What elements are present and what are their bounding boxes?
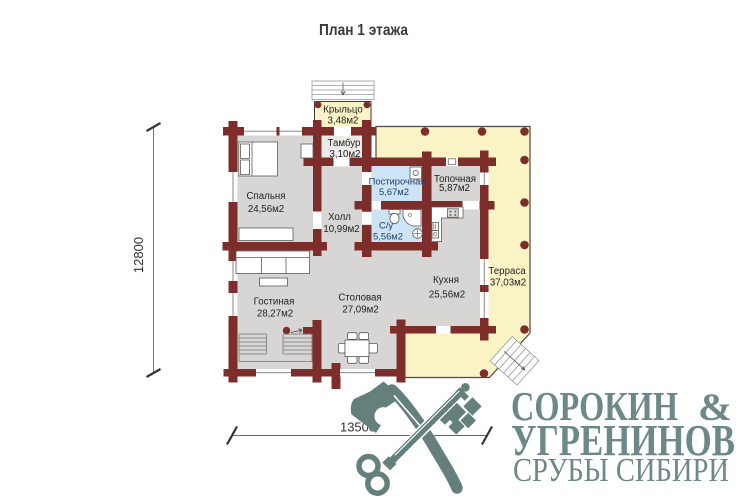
svg-text:Кухня: Кухня — [433, 275, 459, 286]
svg-text:3,10м2: 3,10м2 — [330, 149, 361, 160]
svg-text:5,56м2: 5,56м2 — [373, 231, 403, 242]
svg-text:5,87м2: 5,87м2 — [439, 183, 470, 194]
svg-text:12800: 12800 — [131, 237, 146, 273]
svg-text:План 1 этажа: План 1 этажа — [319, 22, 408, 39]
svg-text:Крыльцо: Крыльцо — [323, 105, 363, 116]
svg-text:5,67м2: 5,67м2 — [379, 186, 409, 197]
svg-text:Спальня: Спальня — [247, 191, 286, 202]
svg-text:Столовая: Столовая — [338, 293, 381, 304]
svg-text:24,56м2: 24,56м2 — [248, 204, 284, 215]
svg-text:27,09м2: 27,09м2 — [342, 305, 378, 316]
svg-text:28,27м2: 28,27м2 — [257, 309, 293, 320]
svg-text:3,48м2: 3,48м2 — [328, 116, 359, 127]
svg-text:Холл: Холл — [328, 212, 351, 223]
svg-text:10,99м2: 10,99м2 — [323, 224, 359, 235]
svg-text:Тамбур: Тамбур — [328, 138, 361, 149]
svg-text:Гостиная: Гостиная — [254, 297, 295, 308]
svg-text:Терраса: Терраса — [488, 266, 526, 277]
svg-text:37,03м2: 37,03м2 — [490, 278, 526, 289]
svg-text:СРУБЫ СИБИРИ: СРУБЫ СИБИРИ — [513, 452, 729, 489]
svg-text:Постирочная: Постирочная — [369, 176, 426, 187]
svg-text:С/у: С/у — [379, 220, 393, 231]
svg-text:25,56м2: 25,56м2 — [429, 290, 465, 301]
